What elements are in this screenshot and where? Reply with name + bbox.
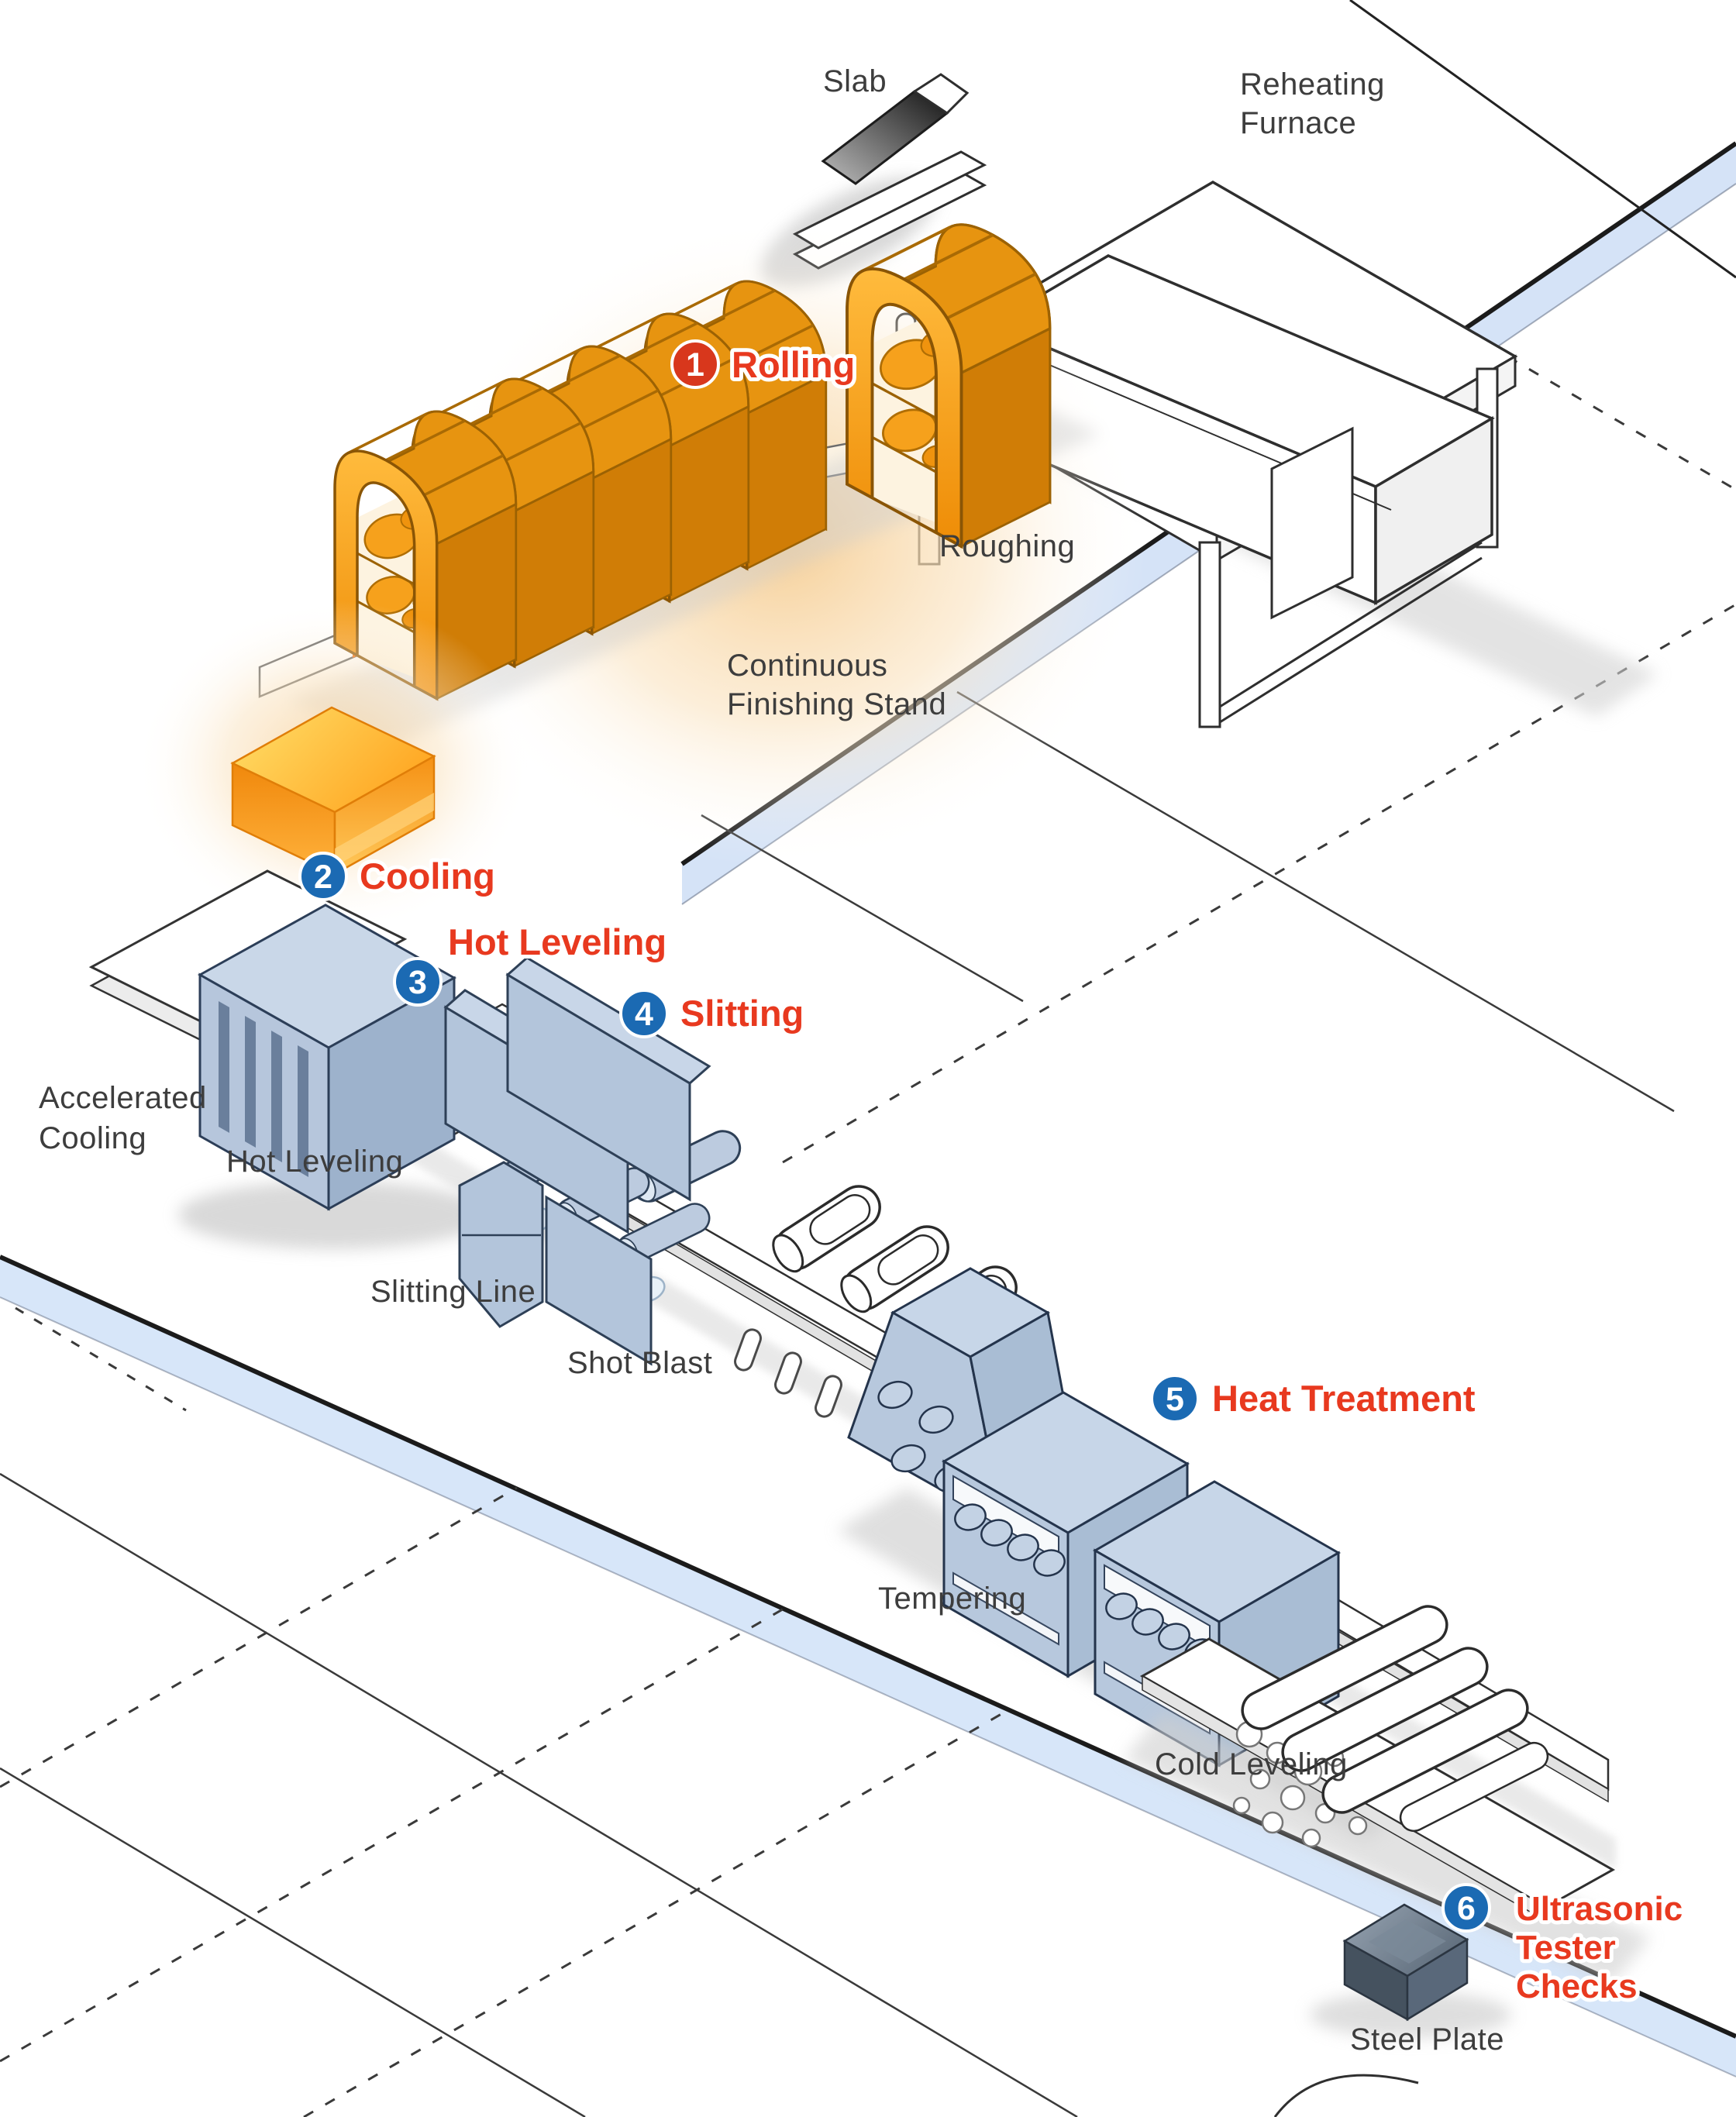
label-hot-leveling: Hot Leveling xyxy=(226,1145,403,1179)
label-accelerated-cooling-2: Cooling xyxy=(39,1121,146,1155)
process-diagram: Slab Reheating Furnace Roughing Continuo… xyxy=(0,0,1736,2117)
step-5-heat-treatment: 5 Heat Treatment xyxy=(1152,1375,1476,1422)
step-1-rolling: 1 Rolling xyxy=(672,341,855,387)
diagram-canvas: Slab Reheating Furnace Roughing Continuo… xyxy=(0,0,1736,2117)
svg-text:Ultrasonic: Ultrasonic xyxy=(1516,1890,1683,1928)
svg-text:4: 4 xyxy=(635,996,653,1033)
svg-text:Rolling: Rolling xyxy=(732,344,855,385)
svg-text:2: 2 xyxy=(314,859,332,896)
label-steel-plate: Steel Plate xyxy=(1350,2022,1504,2057)
label-accelerated-cooling: Accelerated xyxy=(39,1081,207,1115)
svg-text:Hot Leveling: Hot Leveling xyxy=(448,921,666,962)
label-finishing-stand: Continuous xyxy=(727,649,887,683)
svg-text:Checks: Checks xyxy=(1516,1967,1638,2005)
svg-text:6: 6 xyxy=(1457,1890,1476,1927)
label-reheating-furnace-2: Furnace xyxy=(1240,106,1356,140)
label-tempering: Tempering xyxy=(878,1582,1026,1616)
roughing-stand xyxy=(847,225,1050,546)
svg-text:Cooling: Cooling xyxy=(360,855,495,897)
step-4-slitting: 4 Slitting xyxy=(621,990,804,1037)
svg-text:Tester: Tester xyxy=(1516,1929,1616,1967)
label-slitting-line: Slitting Line xyxy=(370,1275,536,1309)
label-finishing-stand-2: Finishing Stand xyxy=(727,687,946,721)
label-reheating-furnace: Reheating xyxy=(1240,67,1385,102)
label-roughing: Roughing xyxy=(939,529,1075,563)
canopy-leg xyxy=(1200,542,1220,727)
svg-text:1: 1 xyxy=(686,346,704,384)
svg-text:3: 3 xyxy=(408,964,427,1001)
step-2-cooling: 2 Cooling xyxy=(300,853,495,900)
svg-text:5: 5 xyxy=(1166,1381,1184,1418)
svg-text:Slitting: Slitting xyxy=(680,993,804,1034)
label-shot-blast: Shot Blast xyxy=(567,1346,712,1380)
platform-edge-ne xyxy=(1350,0,1736,277)
label-cold-leveling: Cold Leveling xyxy=(1155,1747,1348,1781)
label-slab: Slab xyxy=(823,64,887,98)
svg-text:Heat Treatment: Heat Treatment xyxy=(1212,1378,1476,1419)
